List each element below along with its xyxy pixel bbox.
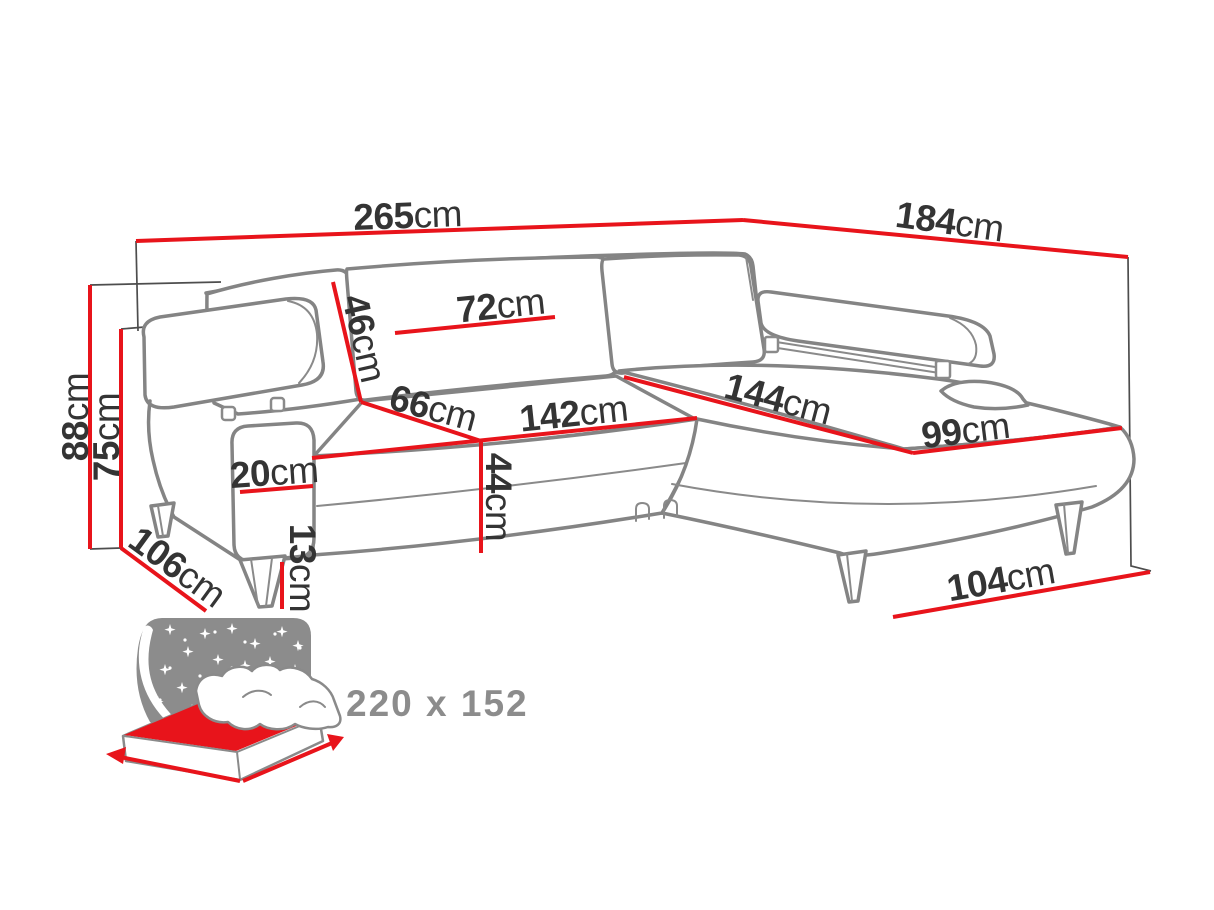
back-bolster (758, 292, 994, 367)
dim-label-backrest-height: 75cm (86, 393, 127, 481)
dim-label-chaise-outer: 104cm (944, 550, 1058, 609)
dim-label-side-depth: 106cm (121, 518, 233, 615)
sofa-dimension-diagram: 265cm 184cm 88cm 75cm 46cm 72cm 66cm 142… (0, 0, 1214, 910)
dim-label-total-depth: 184cm (893, 194, 1006, 250)
sleeping-size-label: 220 x 152 (346, 683, 529, 724)
sleeper-icon: 220 x 152 (106, 618, 529, 781)
dim-label-seat-height: 44cm (478, 453, 519, 541)
duvet-pillows (196, 665, 340, 729)
dim-label-leg-height: 13cm (282, 524, 323, 612)
diagram-canvas: 265cm 184cm 88cm 75cm 46cm 72cm 66cm 142… (0, 0, 1214, 910)
dim-label-armrest-width: 20cm (229, 449, 320, 496)
back-cushion-right (602, 255, 765, 373)
dim-label-total-width: 265cm (353, 193, 463, 238)
